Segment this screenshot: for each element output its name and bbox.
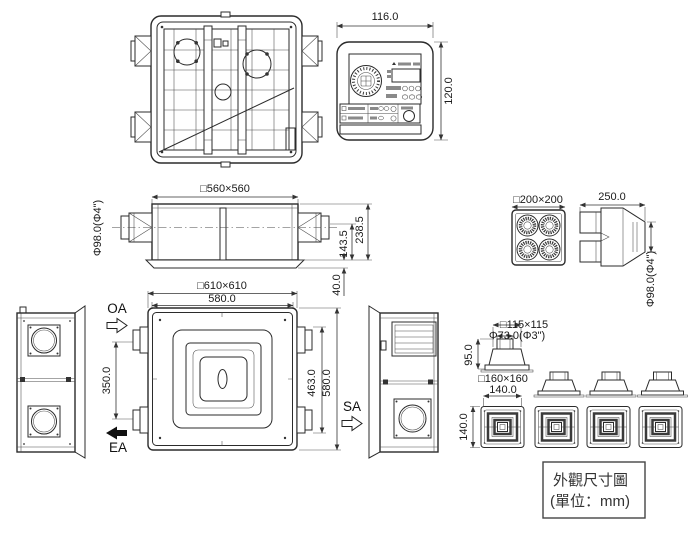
panel-outer-height-text: 580.0 [321, 369, 333, 397]
diffuser-side-view-3 [586, 372, 636, 397]
center-divider [220, 208, 226, 260]
duct-spacing-dimension: 350.0 [101, 342, 146, 419]
airflow-annotations: OA 350.0 EA [101, 301, 146, 455]
elevation-top-dim-text: □560×560 [200, 183, 250, 195]
ea-arrow-icon [106, 427, 127, 440]
setting-buttons-row1 [386, 86, 420, 91]
elevation-top-dimension: □560×560 [152, 183, 298, 205]
panel-inner-width-text: 580.0 [208, 293, 236, 305]
diffuser-side-view-4 [638, 372, 688, 397]
duct-connector-top-right [302, 36, 322, 66]
fan-opening-right [243, 50, 271, 78]
brand-label [392, 62, 420, 66]
diffuser-side-view-2 [534, 372, 584, 397]
diffuser-side-view-1 [481, 339, 533, 372]
mode-switch-table [340, 104, 420, 123]
ceiling-flange [146, 260, 304, 268]
left-view-flange [75, 306, 85, 458]
setting-buttons-row2 [386, 94, 422, 99]
wiring-fitting [214, 39, 228, 47]
timer-dial [351, 66, 382, 97]
grille-size-text: □200×200 [513, 194, 563, 206]
panel-inner-height-text: 463.0 [306, 369, 318, 397]
oa-label: OA [107, 301, 127, 316]
right-view-flange [369, 306, 380, 458]
duct-connector-bottom-right [302, 112, 322, 142]
right-side-view [369, 306, 438, 458]
panel-outer [148, 308, 297, 450]
duct-spacing-text: 350.0 [101, 367, 113, 395]
top-edge-tab [221, 12, 230, 17]
duct-connector-bottom-left [131, 112, 151, 142]
grille-bottom-view: □200×200 [512, 194, 565, 265]
grille-ports [517, 215, 560, 260]
title-line1: 外觀尺寸圖 [553, 472, 628, 489]
timer-display [387, 69, 420, 82]
adapter-duct-label: Φ98.0(Φ4") [645, 251, 657, 307]
diffuser-bottom-view-3 [587, 407, 630, 448]
elevation-duct-label: Φ98.0(Φ4") [92, 200, 104, 256]
diffuser-views: □115×115 Φ73.0(Φ3") 95.0 [458, 319, 688, 448]
grid-lines [164, 29, 289, 150]
controller-height-text: 120.0 [443, 77, 455, 105]
controller-lower-strip [340, 125, 421, 134]
diffuser-bottom-view-4 [639, 407, 682, 448]
adapter-body [580, 208, 645, 266]
panel-outer-dim-text: □610×610 [197, 280, 247, 292]
bottom-edge-tab [221, 162, 230, 167]
left-view-body [17, 313, 75, 452]
controller-width-dimension: 116.0 [337, 11, 433, 38]
diffuser-bottom-view-1 [481, 407, 524, 448]
title-line2: (單位：mm) [550, 493, 630, 510]
left-side-view [17, 306, 85, 458]
unit-top-view [131, 12, 322, 167]
bottom-panel-view: □610×610 580.0 463.0 580.0 [133, 280, 362, 450]
flange-height-text: 40.0 [331, 274, 343, 295]
diffuser-bottom-view-2 [535, 407, 578, 448]
center-port [215, 84, 231, 100]
diffuser-bottom-views [481, 407, 682, 448]
duct-connector-top-left [131, 36, 151, 66]
diffuser-width-text: 140.0 [489, 384, 517, 396]
controller-width-text: 116.0 [372, 11, 399, 23]
sa-label: SA [343, 399, 361, 414]
duct-adapter-side-view: 250.0 Φ98.0(Φ4") [580, 191, 657, 307]
diffuser-depth-text: 140.0 [458, 413, 470, 441]
title-box: 外觀尺寸圖 (單位：mm) [543, 462, 645, 518]
ea-label: EA [109, 440, 127, 455]
controller-height-dimension: 120.0 [434, 42, 455, 140]
sa-arrow-icon [342, 417, 362, 431]
dimension-drawing-sheet: 116.0 120.0 [0, 0, 695, 537]
oa-arrow-icon [107, 319, 127, 333]
remote-controller: 116.0 120.0 [337, 11, 455, 140]
adapter-length-text: 250.0 [598, 191, 626, 203]
panel-top-dimensions: □610×610 580.0 [148, 280, 297, 310]
body-height-text: 238.5 [354, 216, 366, 244]
diffuser-height-text: 95.0 [463, 344, 475, 365]
